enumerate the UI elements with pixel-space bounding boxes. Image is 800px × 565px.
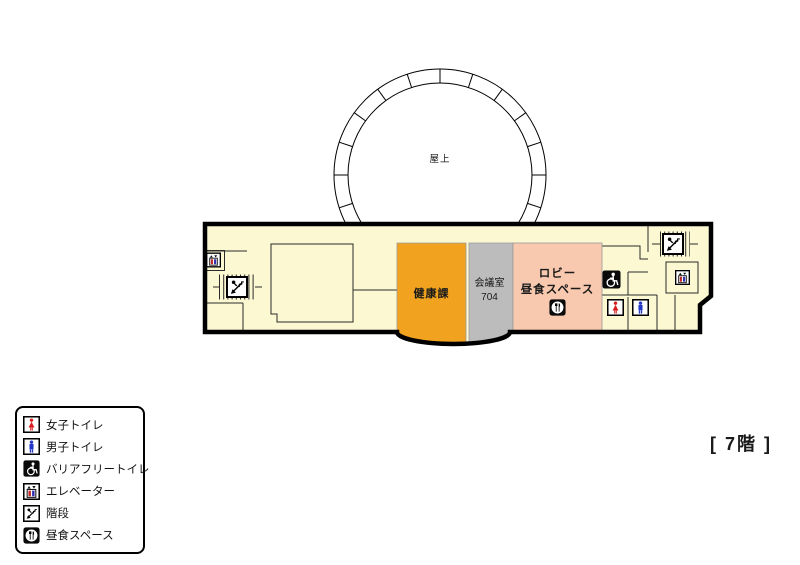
stairs-icon [663, 234, 683, 254]
room-label-meeting: 会議室 704 [466, 277, 513, 304]
elevator-icon [676, 271, 690, 285]
roof-label: 屋上 [415, 151, 465, 165]
women-toilet-icon [23, 416, 40, 433]
legend-item: エレベーター [23, 483, 137, 500]
men-toilet-icon [633, 300, 648, 315]
legend-item: 階段 [23, 505, 137, 522]
legend: 女子トイレ 男子トイレ バリアフリートイレ エレベーター 階段 昼食スペース [15, 406, 145, 554]
stairs-icon [227, 277, 247, 297]
stairs-icon [23, 505, 40, 522]
legend-label: バリアフリートイレ [46, 461, 150, 477]
barrier-free-toilet-icon [23, 460, 40, 477]
elevator-icon [23, 483, 40, 500]
legend-item: 昼食スペース [23, 527, 137, 544]
legend-item: バリアフリートイレ [23, 460, 137, 477]
men-toilet-icon [23, 438, 40, 455]
floor-map-page: 屋上 健康課 会議室 704 ロビー 昼食スペース [ 7階 ] 女子トイレ 男… [0, 0, 800, 565]
elevator-icon [207, 253, 221, 267]
legend-item: 男子トイレ [23, 438, 137, 455]
floor-number-label: [ 7階 ] [684, 430, 798, 456]
room-label-health: 健康課 [396, 285, 467, 301]
women-toilet-icon [608, 300, 623, 315]
lunch-space-icon [549, 299, 565, 315]
legend-label: エレベーター [46, 483, 115, 499]
legend-label: 女子トイレ [46, 417, 104, 433]
room-label-lobby: ロビー 昼食スペース [508, 266, 607, 298]
lunch-space-icon [23, 527, 40, 544]
legend-item: 女子トイレ [23, 416, 137, 433]
legend-label: 昼食スペース [46, 527, 114, 543]
legend-label: 階段 [46, 505, 69, 521]
legend-label: 男子トイレ [46, 439, 104, 455]
